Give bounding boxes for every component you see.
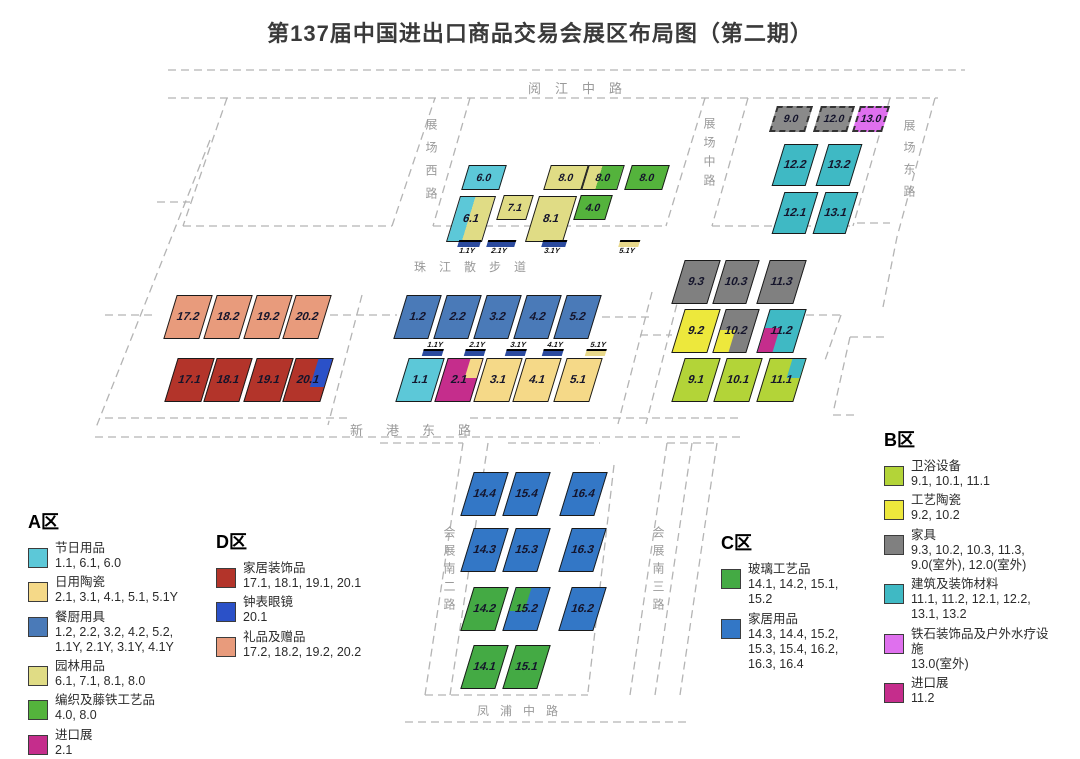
hall-label-13.2: 13.2 [826, 159, 852, 171]
marker-label-4.1Y: 4.1Y [546, 341, 564, 349]
hall-label-3.2: 3.2 [487, 311, 507, 323]
hall-label-8.0b: 8.0 [594, 171, 612, 183]
legend-item-name: 玻璃工艺品 [748, 562, 838, 577]
hall-label-6.1: 6.1 [461, 213, 481, 225]
road-label-zhanchang-zhong-lu: 展场中路 [701, 117, 718, 193]
legend-zone-C-title: C区 [721, 529, 871, 555]
legend-item-text: 节日用品1.1, 6.1, 6.0 [55, 541, 121, 571]
hall-label-5.2: 5.2 [567, 311, 587, 323]
hall-label-2.1: 2.1 [449, 374, 469, 386]
legend-color-swatch [884, 584, 904, 604]
hall-label-9.2: 9.2 [686, 325, 706, 337]
marker-label-3.1Y: 3.1Y [543, 247, 561, 255]
legend-item: 工艺陶瓷9.2, 10.2 [884, 493, 1054, 523]
legend-color-swatch [28, 548, 48, 568]
legend-color-swatch [721, 569, 741, 589]
legend-item-name: 建筑及装饰材料 [911, 577, 1031, 592]
legend-item-codes: 20.1 [243, 610, 293, 625]
hall-label-6.0: 6.0 [475, 171, 493, 183]
legend-item-codes: 11.2 [911, 691, 949, 706]
legend-item-text: 建筑及装饰材料11.1, 11.2, 12.1, 12.2, 13.1, 13.… [911, 577, 1031, 623]
legend-zone-C: C区玻璃工艺品14.1, 14.2, 15.1, 15.2家居用品14.3, 1… [721, 529, 871, 676]
legend-item: 日用陶瓷2.1, 3.1, 4.1, 5.1, 5.1Y [28, 575, 213, 605]
hall-label-9.3: 9.3 [686, 276, 706, 288]
hall-label-14.4: 14.4 [471, 488, 497, 500]
legend-item-name: 餐厨用具 [55, 610, 174, 625]
legend-zone-B: B区卫浴设备9.1, 10.1, 11.1工艺陶瓷9.2, 10.2家具9.3,… [884, 426, 1054, 710]
hall-label-13.0: 13.0 [859, 113, 883, 125]
hall-label-16.3: 16.3 [569, 544, 595, 556]
legend-item-codes: 9.3, 10.2, 10.3, 11.3, 9.0(室外), 12.0(室外) [911, 543, 1026, 574]
hall-label-4.0: 4.0 [584, 201, 602, 213]
legend-item-text: 日用陶瓷2.1, 3.1, 4.1, 5.1, 5.1Y [55, 575, 178, 605]
legend-item-name: 铁石装饰品及户外水疗设施 [911, 627, 1054, 657]
legend-item-text: 家具9.3, 10.2, 10.3, 11.3, 9.0(室外), 12.0(室… [911, 528, 1026, 574]
hall-label-9.1: 9.1 [686, 374, 706, 386]
hall-8.0b: 8.0 [581, 165, 625, 190]
legend-item-text: 铁石装饰品及户外水疗设施13.0(室外) [911, 627, 1054, 672]
hall-label-1.2: 1.2 [407, 311, 427, 323]
legend-color-swatch [884, 500, 904, 520]
hall-label-5.1: 5.1 [568, 374, 588, 386]
legend-item: 卫浴设备9.1, 10.1, 11.1 [884, 459, 1054, 489]
legend-item-codes: 2.1, 3.1, 4.1, 5.1, 5.1Y [55, 590, 178, 605]
legend-item-codes: 14.3, 14.4, 15.2, 15.3, 15.4, 16.2, 16.3… [748, 627, 838, 673]
hall-label-12.2: 12.2 [782, 159, 808, 171]
legend-item: 建筑及装饰材料11.1, 11.2, 12.1, 12.2, 13.1, 13.… [884, 577, 1054, 623]
legend-item-name: 礼品及赠品 [243, 630, 361, 645]
legend-item-codes: 6.1, 7.1, 8.1, 8.0 [55, 674, 145, 689]
road-label-zhanchang-xi-lu: 展场西路 [423, 118, 440, 210]
legend-item: 餐厨用具1.2, 2.2, 3.2, 4.2, 5.2, 1.1Y, 2.1Y,… [28, 610, 213, 656]
legend-item-codes: 2.1 [55, 743, 93, 758]
hall-label-10.3: 10.3 [723, 276, 749, 288]
legend-item-codes: 4.0, 8.0 [55, 708, 155, 723]
road-label-zhujiang-sanbudao: 珠江散步道 [414, 258, 539, 275]
road-label-huizhan-nan-er-lu: 会展南二路 [441, 526, 458, 616]
legend-item-text: 礼品及赠品17.2, 18.2, 19.2, 20.2 [243, 630, 361, 660]
hall-label-8.0c: 8.0 [638, 171, 656, 183]
legend-color-swatch [884, 683, 904, 703]
legend-item-text: 园林用品6.1, 7.1, 8.1, 8.0 [55, 659, 145, 689]
outline-right-steps [806, 315, 884, 415]
canton-fair-layout-map: 第137届中国进出口商品交易会展区布局图（第二期） 6.08.08.08.06.… [0, 0, 1080, 759]
hall-label-15.4: 15.4 [513, 488, 539, 500]
legend-item-text: 进口展2.1 [55, 728, 93, 758]
hall-label-14.3: 14.3 [471, 544, 497, 556]
legend-zone-A-title: A区 [28, 508, 213, 534]
hall-label-17.1: 17.1 [176, 374, 202, 386]
legend-item-codes: 1.1, 6.1, 6.0 [55, 556, 121, 571]
marker-bar-4.1Y [542, 349, 564, 356]
marker-label-3.1Y: 3.1Y [509, 341, 527, 349]
hall-label-8.0a: 8.0 [557, 171, 575, 183]
hall-label-2.2: 2.2 [447, 311, 467, 323]
legend-zone-A: A区节日用品1.1, 6.1, 6.0日用陶瓷2.1, 3.1, 4.1, 5.… [28, 508, 213, 759]
marker-label-5.1Y: 5.1Y [589, 341, 607, 349]
legend-item: 进口展11.2 [884, 676, 1054, 706]
marker-label-2.1Y: 2.1Y [468, 341, 486, 349]
road-label-zhanchang-dong-lu: 展场东路 [901, 119, 918, 207]
hall-label-14.2: 14.2 [471, 603, 497, 615]
hall-label-11.2: 11.2 [768, 325, 793, 337]
hall-label-15.2: 15.2 [513, 603, 539, 615]
marker-bar-3.1Y [505, 349, 527, 356]
legend-item: 钟表眼镜20.1 [216, 595, 391, 625]
hall-label-15.3: 15.3 [513, 544, 539, 556]
hall-label-7.1: 7.1 [506, 201, 524, 213]
legend-item-name: 家具 [911, 528, 1026, 543]
marker-label-2.1Y: 2.1Y [490, 247, 508, 255]
marker-top-1.1Y: 1.1Y [455, 240, 482, 255]
legend-item-codes: 9.2, 10.2 [911, 508, 961, 523]
road-label-fengpu-zhong-lu: 凤浦中路 [477, 702, 569, 719]
legend-item-text: 工艺陶瓷9.2, 10.2 [911, 493, 961, 523]
hall-label-14.1: 14.1 [471, 661, 497, 673]
legend-item-name: 节日用品 [55, 541, 121, 556]
road-label-huizhan-nan-san-lu: 会展南三路 [650, 526, 667, 616]
legend-item-name: 园林用品 [55, 659, 145, 674]
hall-label-12.1: 12.1 [782, 207, 808, 219]
legend-item-text: 钟表眼镜20.1 [243, 595, 293, 625]
legend-zone-D-title: D区 [216, 528, 391, 554]
legend-item: 节日用品1.1, 6.1, 6.0 [28, 541, 213, 571]
legend-item: 家居装饰品17.1, 18.1, 19.1, 20.1 [216, 561, 391, 591]
hall-label-12.0: 12.0 [822, 113, 846, 125]
legend-item-name: 卫浴设备 [911, 459, 990, 474]
hall-label-18.1: 18.1 [215, 374, 241, 386]
hall-8.0c: 8.0 [624, 165, 670, 190]
hall-label-10.2: 10.2 [723, 325, 749, 337]
hall-label-19.1: 19.1 [255, 374, 281, 386]
hall-label-4.1: 4.1 [527, 374, 547, 386]
legend-item-text: 家居用品14.3, 14.4, 15.2, 15.3, 15.4, 16.2, … [748, 612, 838, 673]
legend-item-name: 钟表眼镜 [243, 595, 293, 610]
legend-item-name: 家居用品 [748, 612, 838, 627]
legend-color-swatch [884, 466, 904, 486]
marker-label-1.1Y: 1.1Y [426, 341, 444, 349]
hall-label-17.2: 17.2 [175, 311, 201, 323]
legend-item: 礼品及赠品17.2, 18.2, 19.2, 20.2 [216, 630, 391, 660]
hall-label-20.1: 20.1 [295, 374, 321, 386]
marker-label-5.1Y: 5.1Y [618, 247, 636, 255]
legend-item-text: 玻璃工艺品14.1, 14.2, 15.1, 15.2 [748, 562, 838, 608]
marker-bar-1.1Y [422, 349, 444, 356]
legend-color-swatch [28, 735, 48, 755]
legend-color-swatch [216, 568, 236, 588]
legend-item-codes: 11.1, 11.2, 12.1, 12.2, 13.1, 13.2 [911, 592, 1031, 623]
hall-label-4.2: 4.2 [527, 311, 547, 323]
hall-label-1.1: 1.1 [410, 374, 430, 386]
legend-item: 铁石装饰品及户外水疗设施13.0(室外) [884, 627, 1054, 672]
legend-item-name: 编织及藤铁工艺品 [55, 693, 155, 708]
hall-label-13.1: 13.1 [822, 207, 848, 219]
hall-label-11.1: 11.1 [768, 374, 793, 386]
legend-zone-D: D区家居装饰品17.1, 18.1, 19.1, 20.1钟表眼镜20.1礼品及… [216, 528, 391, 664]
legend-color-swatch [216, 602, 236, 622]
marker-bar-5.1Y [585, 349, 607, 356]
legend-color-swatch [28, 700, 48, 720]
hall-label-16.2: 16.2 [569, 603, 595, 615]
hall-label-20.2: 20.2 [294, 311, 320, 323]
legend-color-swatch [884, 535, 904, 555]
marker-label-1.1Y: 1.1Y [458, 247, 476, 255]
legend-item-codes: 17.2, 18.2, 19.2, 20.2 [243, 645, 361, 660]
legend-item-name: 家居装饰品 [243, 561, 361, 576]
road-label-yuejiang-zhong-lu: 阅江中路 [528, 78, 636, 97]
legend-color-swatch [884, 634, 904, 654]
legend-item: 园林用品6.1, 7.1, 8.1, 8.0 [28, 659, 213, 689]
legend-item-name: 进口展 [911, 676, 949, 691]
legend-item-codes: 9.1, 10.1, 11.1 [911, 474, 990, 489]
hall-label-10.1: 10.1 [725, 374, 751, 386]
legend-item-text: 进口展11.2 [911, 676, 949, 706]
legend-item: 编织及藤铁工艺品4.0, 8.0 [28, 693, 213, 723]
legend-color-swatch [28, 666, 48, 686]
legend-item: 玻璃工艺品14.1, 14.2, 15.1, 15.2 [721, 562, 871, 608]
hall-label-19.2: 19.2 [255, 311, 281, 323]
legend-item: 家居用品14.3, 14.4, 15.2, 15.3, 15.4, 16.2, … [721, 612, 871, 673]
legend-item-codes: 14.1, 14.2, 15.1, 15.2 [748, 577, 838, 608]
hall-label-3.1: 3.1 [488, 374, 508, 386]
legend-color-swatch [28, 617, 48, 637]
legend-item-text: 餐厨用具1.2, 2.2, 3.2, 4.2, 5.2, 1.1Y, 2.1Y,… [55, 610, 174, 656]
hall-label-18.2: 18.2 [215, 311, 241, 323]
road-label-xingang-dong-lu: 新港东路 [350, 420, 494, 439]
legend-color-swatch [28, 582, 48, 602]
legend-item-text: 家居装饰品17.1, 18.1, 19.1, 20.1 [243, 561, 361, 591]
legend-color-swatch [216, 637, 236, 657]
hall-label-8.1: 8.1 [541, 213, 561, 225]
legend-zone-B-title: B区 [884, 426, 1054, 452]
hall-label-9.0: 9.0 [782, 113, 800, 125]
marker-top-3.1Y: 3.1Y [539, 240, 568, 255]
legend-item-codes: 1.2, 2.2, 3.2, 4.2, 5.2, 1.1Y, 2.1Y, 3.1… [55, 625, 174, 656]
marker-bar-2.1Y [464, 349, 486, 356]
hall-label-11.3: 11.3 [768, 276, 793, 288]
marker-top-2.1Y: 2.1Y [484, 240, 517, 255]
legend-color-swatch [721, 619, 741, 639]
hall-label-16.4: 16.4 [570, 488, 596, 500]
hall-label-15.1: 15.1 [513, 661, 539, 673]
legend-item: 进口展2.1 [28, 728, 213, 758]
legend-item-codes: 17.1, 18.1, 19.1, 20.1 [243, 576, 361, 591]
legend-item-text: 编织及藤铁工艺品4.0, 8.0 [55, 693, 155, 723]
legend-item-text: 卫浴设备9.1, 10.1, 11.1 [911, 459, 990, 489]
hall-6.0: 6.0 [461, 165, 507, 190]
legend-item-name: 工艺陶瓷 [911, 493, 961, 508]
legend-item-name: 进口展 [55, 728, 93, 743]
legend-item-name: 日用陶瓷 [55, 575, 178, 590]
legend-item-codes: 13.0(室外) [911, 657, 1054, 672]
legend-item: 家具9.3, 10.2, 10.3, 11.3, 9.0(室外), 12.0(室… [884, 528, 1054, 574]
